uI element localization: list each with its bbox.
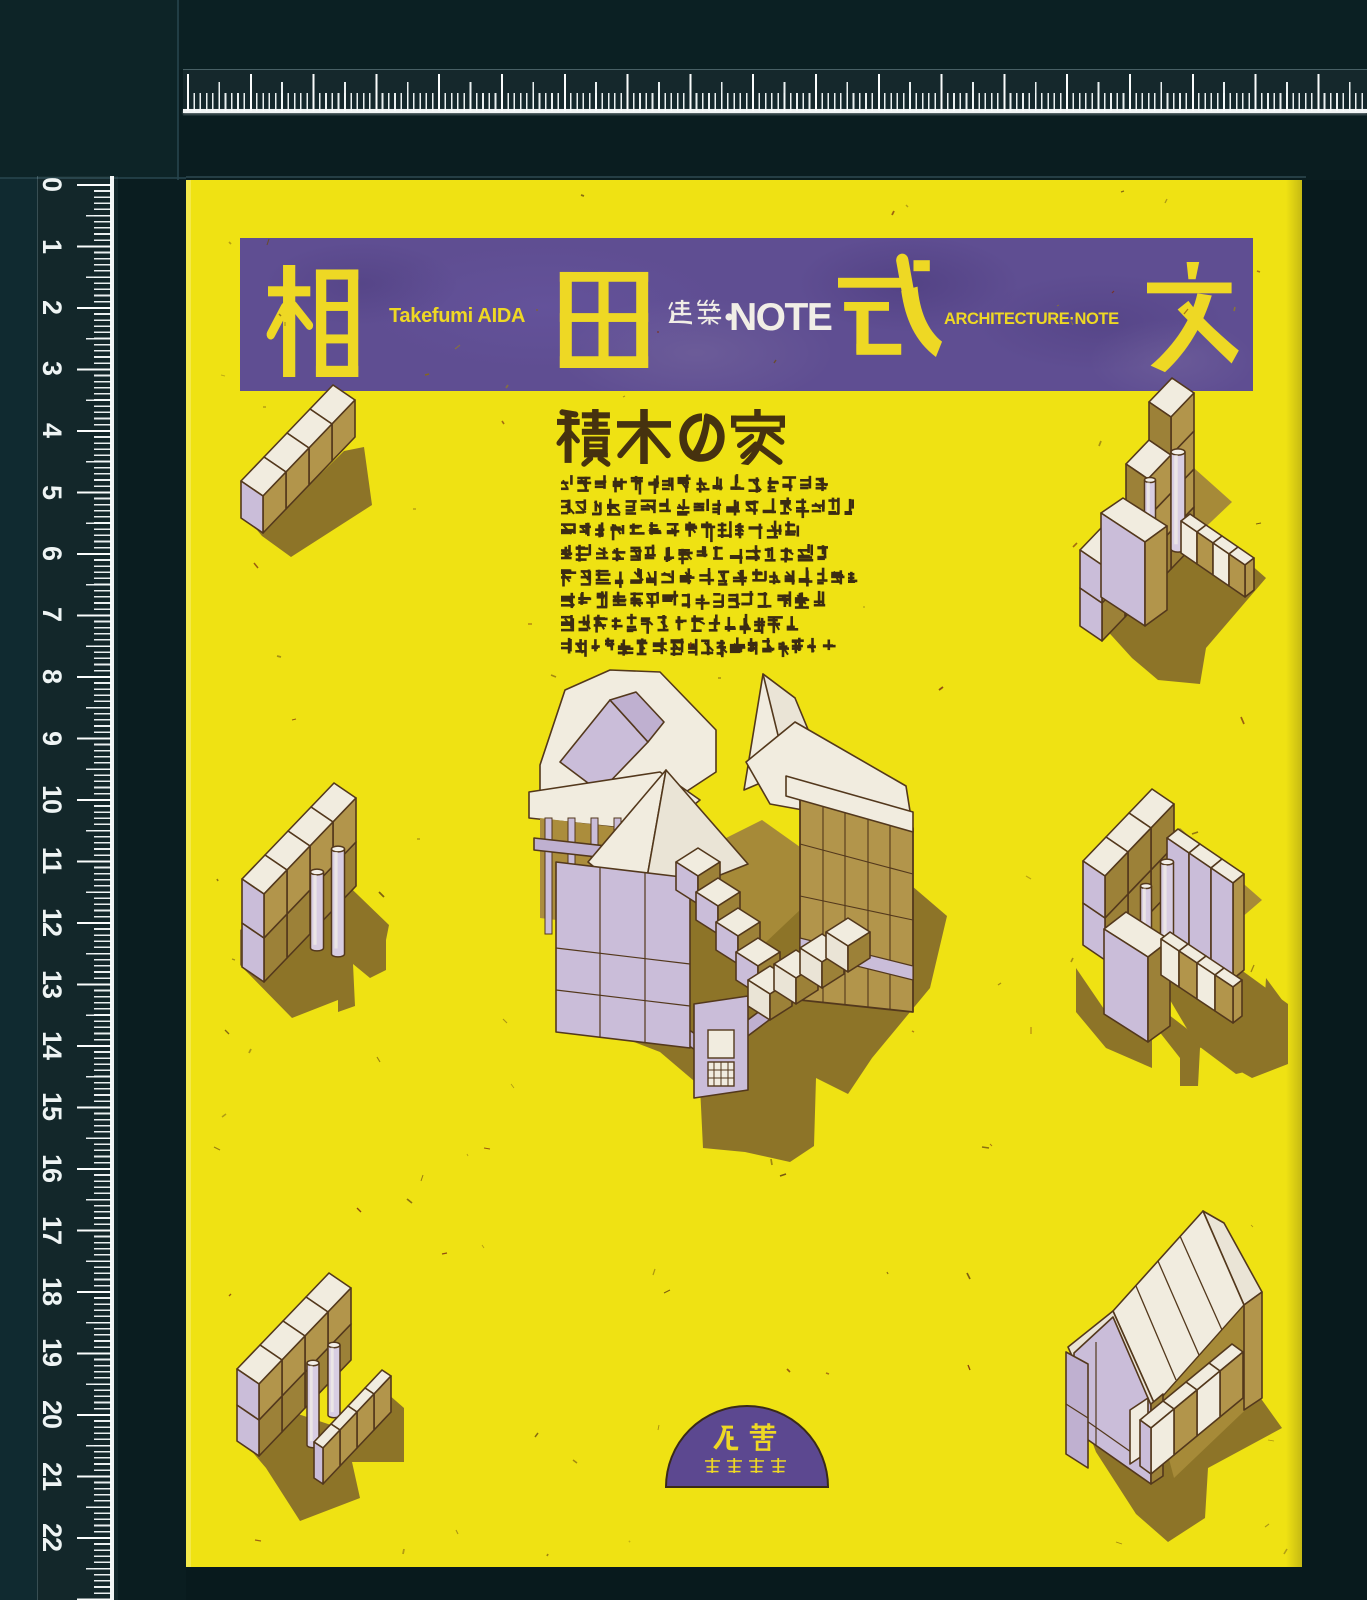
svg-text:NOTE: NOTE [729,296,832,339]
svg-text:ARCHITECTURE·NOTE: ARCHITECTURE·NOTE [944,310,1119,328]
svg-text:Takefumi AIDA: Takefumi AIDA [389,305,525,327]
